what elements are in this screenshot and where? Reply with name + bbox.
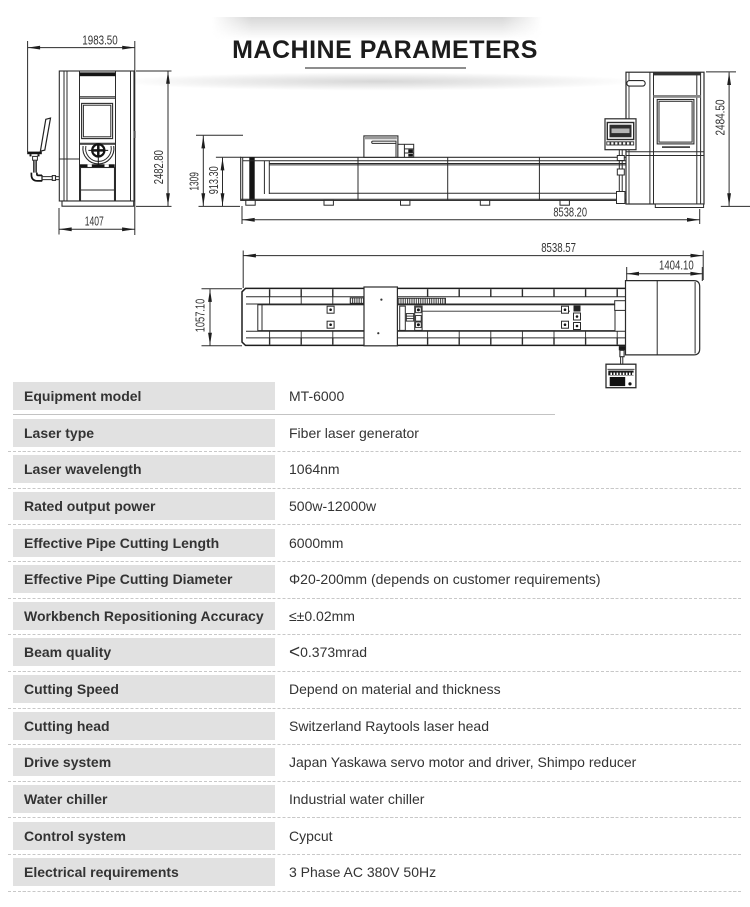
svg-text:1404.10: 1404.10 bbox=[659, 258, 694, 273]
svg-text:1407: 1407 bbox=[85, 213, 104, 228]
svg-text:1983.50: 1983.50 bbox=[82, 32, 117, 47]
svg-text:8538.20: 8538.20 bbox=[553, 205, 587, 220]
svg-text:1057.10: 1057.10 bbox=[192, 299, 207, 333]
svg-text:913.30: 913.30 bbox=[206, 166, 221, 194]
svg-text:2484.50: 2484.50 bbox=[713, 100, 728, 136]
svg-text:2482.80: 2482.80 bbox=[151, 150, 166, 184]
svg-text:8538.57: 8538.57 bbox=[541, 240, 576, 255]
svg-text:1309: 1309 bbox=[186, 172, 201, 191]
